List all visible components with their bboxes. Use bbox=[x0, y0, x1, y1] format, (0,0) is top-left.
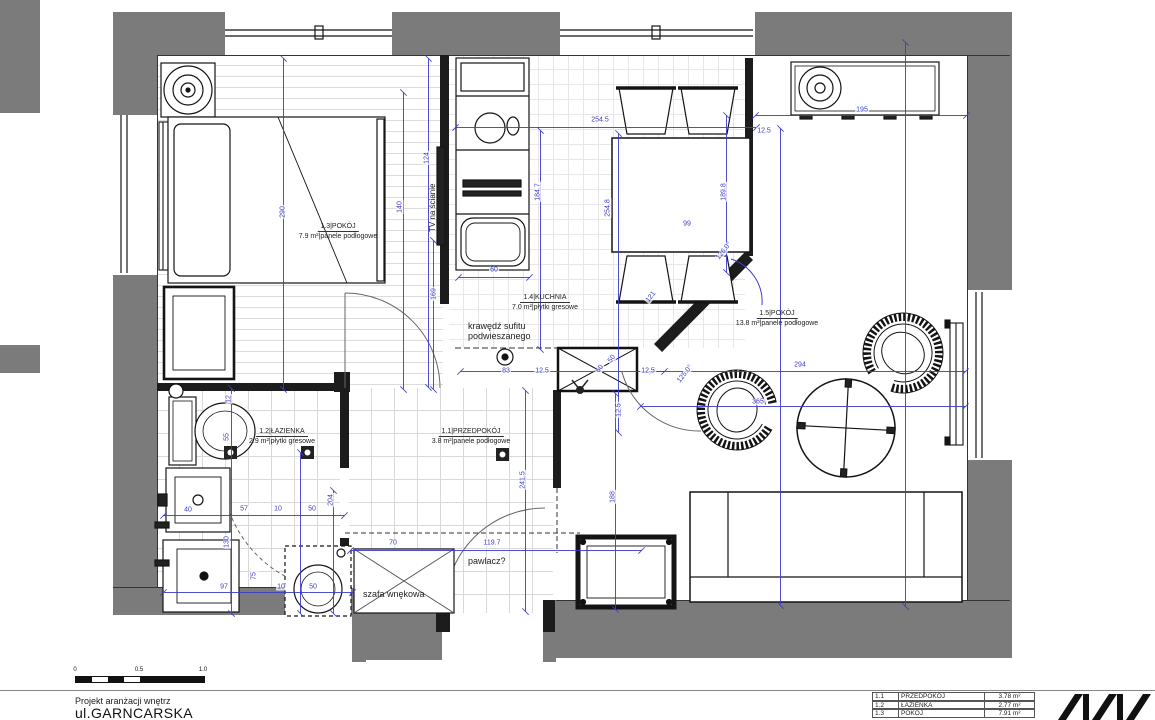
dimension-label: 75 bbox=[251, 571, 258, 581]
dimension-line bbox=[403, 92, 404, 390]
dimension-label: 365 bbox=[751, 399, 765, 406]
scale-bar-label: 1.0 bbox=[199, 667, 207, 673]
dimension-line bbox=[780, 128, 781, 606]
annotation: TV na ścianie bbox=[428, 184, 437, 232]
project-title: ul.GARNCARSKA bbox=[75, 705, 193, 720]
dimension-line bbox=[163, 592, 353, 593]
dimension-label: 10 bbox=[276, 584, 286, 591]
dimension-line bbox=[163, 515, 345, 516]
dimension-label: 12.5 bbox=[616, 402, 623, 418]
dimension-label: 125.0° bbox=[675, 363, 694, 385]
dimension-label: 188 bbox=[610, 490, 617, 504]
dimension-label: 60 bbox=[594, 363, 606, 375]
dimension-line bbox=[540, 130, 541, 350]
room-label-name: 1.3|POKÓJ bbox=[317, 222, 358, 232]
dimension-label: 121 bbox=[644, 289, 658, 304]
legend-cell: 7.91 m² bbox=[985, 709, 1035, 718]
room-label-detail: 7.9 m²|panele podłogowe bbox=[299, 232, 377, 241]
legend-row: 1.2ŁAZIENKA2.77 m² bbox=[873, 701, 1035, 710]
dimension-label: 57 bbox=[239, 506, 249, 513]
dimension-line bbox=[455, 127, 757, 128]
dimension-label: 50 bbox=[307, 506, 317, 513]
legend-row: 1.1PRZEDPOKÓJ3.78 m² bbox=[873, 692, 1035, 701]
legend-row: 1.3POKÓJ7.91 m² bbox=[873, 709, 1035, 718]
dimension-label: 60 bbox=[489, 267, 499, 274]
dimension-line bbox=[231, 388, 232, 614]
annotation: krawędź sufitu podwieszanego bbox=[468, 321, 531, 342]
dimension-line bbox=[640, 406, 966, 407]
dimension-label: 50 bbox=[606, 353, 618, 365]
dimension-label: 40 bbox=[183, 507, 193, 514]
studio-logo bbox=[1058, 693, 1154, 720]
dimension-line bbox=[460, 371, 665, 372]
scale-bar-label: 0 bbox=[73, 667, 76, 673]
dimension-line bbox=[755, 115, 967, 116]
dimension-label: 241.5 bbox=[520, 470, 527, 490]
room-label: 1.1|PRZEDPOKÓJ3.8 m²|panele podłogowe bbox=[432, 427, 510, 446]
annotation: pawlacz? bbox=[468, 556, 506, 566]
dimension-label: 130 bbox=[224, 535, 231, 549]
dimension-line bbox=[283, 58, 284, 390]
titleblock-divider bbox=[0, 690, 1155, 691]
dimension-label: 184.7 bbox=[535, 182, 542, 202]
dimension-label: 126.0° bbox=[714, 240, 733, 262]
dimension-label: 12.5 bbox=[640, 368, 656, 375]
dimension-label: 195 bbox=[855, 107, 869, 114]
dimension-label: 254.8 bbox=[605, 198, 612, 218]
dimension-line bbox=[525, 390, 526, 612]
dimension-label: 119.7 bbox=[483, 540, 502, 547]
dimension-line bbox=[458, 277, 530, 278]
dimension-label: 189.8 bbox=[721, 182, 728, 202]
room-label-detail: 13.8 m²|panele podłogowe bbox=[736, 319, 818, 328]
dimension-label: 169 bbox=[431, 287, 438, 301]
room-label-name: 1.4|KUCHNIA bbox=[520, 293, 569, 303]
legend-cell: 1.1 bbox=[873, 692, 899, 701]
scale-bar bbox=[75, 676, 205, 683]
floor-plan-canvas: 254.512.519599608312.512.529436557105040… bbox=[0, 0, 1155, 720]
room-label: 1.5|POKÓJ13.8 m²|panele podłogowe bbox=[736, 309, 818, 328]
dimension-label: 55 bbox=[224, 432, 231, 442]
dimension-label: 12.5 bbox=[756, 128, 772, 135]
legend-cell: ŁAZIENKA bbox=[899, 701, 985, 710]
dimension-label: 99 bbox=[682, 221, 692, 228]
room-label-detail: 2.9 m²|płytki gresowe bbox=[249, 437, 315, 446]
dimension-label: 290 bbox=[280, 205, 287, 219]
legend-cell: PRZEDPOKÓJ bbox=[899, 692, 985, 701]
dimension-label: 70 bbox=[388, 540, 398, 547]
dimension-line bbox=[652, 371, 966, 372]
dimension-label: 204 bbox=[328, 493, 335, 507]
dimension-label: 294 bbox=[793, 362, 807, 369]
dimension-line bbox=[333, 490, 334, 614]
room-label-detail: 3.8 m²|panele podłogowe bbox=[432, 437, 510, 446]
dimension-overlay: 254.512.519599608312.512.529436557105040… bbox=[0, 0, 1155, 720]
room-label-name: 1.5|POKÓJ bbox=[756, 309, 797, 319]
legend-cell: 1.2 bbox=[873, 701, 899, 710]
dimension-label: 124 bbox=[424, 151, 431, 165]
dimension-label: 97 bbox=[219, 584, 229, 591]
room-area-legend: 1.1PRZEDPOKÓJ3.78 m²1.2ŁAZIENKA2.77 m²1.… bbox=[872, 692, 1035, 718]
dimension-label: 83 bbox=[501, 368, 511, 375]
dimension-label: 12 bbox=[226, 394, 233, 404]
dimension-line bbox=[433, 240, 434, 390]
dimension-line bbox=[350, 550, 642, 551]
room-label: 1.2|ŁAZIENKA2.9 m²|płytki gresowe bbox=[249, 427, 315, 446]
room-label-name: 1.2|ŁAZIENKA bbox=[256, 427, 307, 437]
legend-cell: POKÓJ bbox=[899, 709, 985, 718]
legend-cell: 2.77 m² bbox=[985, 701, 1035, 710]
room-label: 1.4|KUCHNIA7.0 m²|płytki gresowe bbox=[512, 293, 578, 312]
dimension-label: 140 bbox=[397, 200, 404, 214]
dimension-label: 50 bbox=[308, 584, 318, 591]
dimension-label: 10 bbox=[273, 506, 283, 513]
room-label: 1.3|POKÓJ7.9 m²|panele podłogowe bbox=[299, 222, 377, 241]
dimension-label: 254.5 bbox=[590, 117, 610, 124]
room-label-name: 1.1|PRZEDPOKÓJ bbox=[438, 427, 503, 437]
scale-bar-label: 0.5 bbox=[135, 667, 143, 673]
dimension-label: 12.5 bbox=[534, 368, 550, 375]
dimension-line bbox=[618, 133, 619, 433]
dimension-line bbox=[905, 42, 906, 607]
annotation: szafa wnękowa bbox=[363, 589, 425, 599]
room-label-detail: 7.0 m²|płytki gresowe bbox=[512, 303, 578, 312]
dimension-line bbox=[300, 452, 301, 614]
legend-cell: 1.3 bbox=[873, 709, 899, 718]
legend-cell: 3.78 m² bbox=[985, 692, 1035, 701]
